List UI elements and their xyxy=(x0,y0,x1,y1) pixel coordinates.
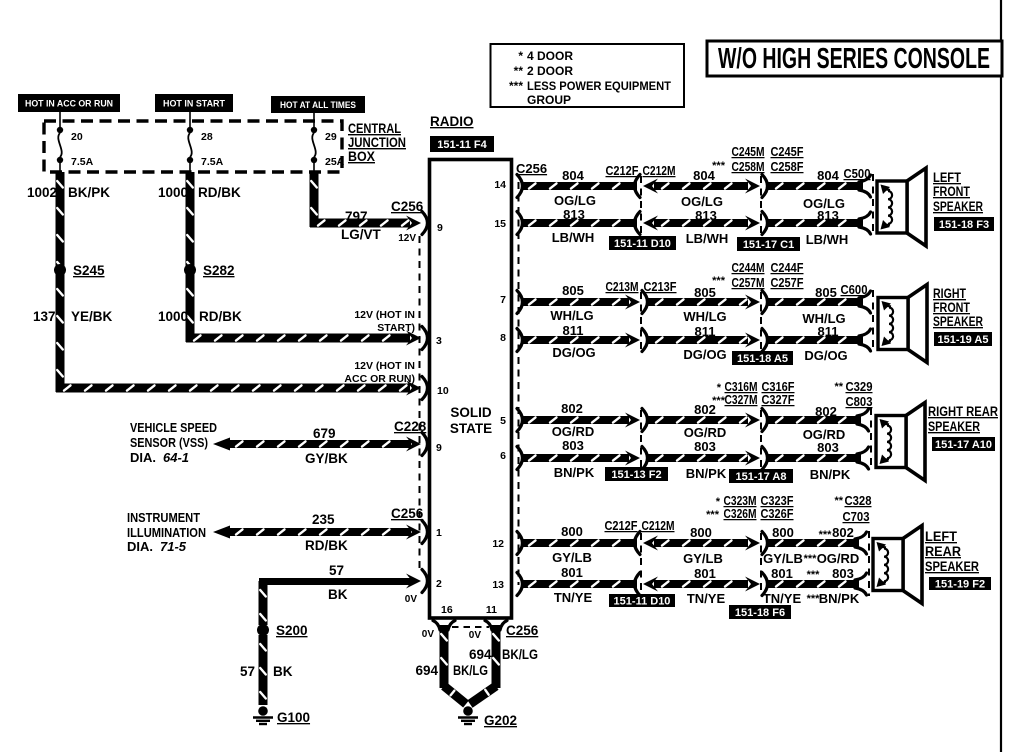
svg-text:679: 679 xyxy=(313,426,336,441)
svg-text:ACC OR RUN): ACC OR RUN) xyxy=(344,373,415,385)
svg-text:C258F: C258F xyxy=(771,160,804,174)
svg-text:64-1: 64-1 xyxy=(163,450,189,465)
svg-text:805: 805 xyxy=(815,285,837,300)
svg-text:9: 9 xyxy=(436,442,442,454)
svg-text:LESS POWER EQUIPMENT: LESS POWER EQUIPMENT xyxy=(527,79,672,93)
svg-text:C213M: C213M xyxy=(606,280,639,294)
svg-text:694: 694 xyxy=(415,663,438,678)
svg-text:BN/PK: BN/PK xyxy=(819,591,860,606)
svg-text:DG/OG: DG/OG xyxy=(804,348,847,363)
svg-text:813: 813 xyxy=(817,208,839,223)
svg-text:10: 10 xyxy=(437,385,449,397)
svg-text:GY/LB: GY/LB xyxy=(683,551,723,566)
svg-text:GY/LB: GY/LB xyxy=(763,551,803,566)
svg-text:G100: G100 xyxy=(277,710,310,725)
svg-text:GY/BK: GY/BK xyxy=(305,451,348,466)
svg-text:151-17 A8: 151-17 A8 xyxy=(736,471,787,483)
svg-text:57: 57 xyxy=(329,563,344,578)
svg-text:C228: C228 xyxy=(394,419,427,434)
svg-text:SENSOR (VSS): SENSOR (VSS) xyxy=(130,435,208,450)
svg-text:C500: C500 xyxy=(844,167,871,181)
svg-text:LEFT: LEFT xyxy=(925,529,958,544)
svg-text:RD/BK: RD/BK xyxy=(305,538,348,553)
svg-text:BK/LG: BK/LG xyxy=(453,663,488,678)
svg-text:802: 802 xyxy=(815,404,837,419)
svg-text:SPEAKER: SPEAKER xyxy=(925,559,979,574)
svg-text:802: 802 xyxy=(561,401,583,416)
svg-text:16: 16 xyxy=(441,604,453,616)
svg-text:C245M: C245M xyxy=(732,145,765,159)
svg-text:6: 6 xyxy=(500,450,506,462)
svg-text:***: *** xyxy=(509,79,523,93)
svg-text:**: ** xyxy=(834,495,843,507)
svg-text:15: 15 xyxy=(494,218,506,230)
svg-text:YE/BK: YE/BK xyxy=(71,309,113,324)
svg-text:SOLID: SOLID xyxy=(450,405,492,420)
svg-text:RADIO: RADIO xyxy=(430,114,474,129)
svg-text:***: *** xyxy=(804,553,818,565)
svg-text:151-17 A10: 151-17 A10 xyxy=(935,439,992,451)
svg-text:2: 2 xyxy=(436,578,442,590)
svg-text:**: ** xyxy=(514,64,524,78)
svg-text:RD/BK: RD/BK xyxy=(199,309,242,324)
svg-text:C323M: C323M xyxy=(724,494,757,508)
svg-text:C316F: C316F xyxy=(762,380,795,394)
svg-text:SPEAKER: SPEAKER xyxy=(928,419,980,434)
svg-text:**: ** xyxy=(834,381,843,393)
svg-text:14: 14 xyxy=(494,179,506,191)
svg-text:C257M: C257M xyxy=(732,276,765,290)
svg-text:C327M: C327M xyxy=(725,393,758,407)
svg-text:8: 8 xyxy=(500,332,506,344)
svg-text:START): START) xyxy=(377,322,415,334)
svg-text:800: 800 xyxy=(561,524,583,539)
svg-text:RIGHT: RIGHT xyxy=(933,286,967,301)
svg-text:W/O HIGH SERIES CONSOLE: W/O HIGH SERIES CONSOLE xyxy=(718,43,990,75)
svg-text:LB/WH: LB/WH xyxy=(686,231,729,246)
svg-text:OG/RD: OG/RD xyxy=(684,425,727,440)
svg-text:811: 811 xyxy=(818,324,839,339)
svg-text:800: 800 xyxy=(772,525,794,540)
svg-text:C803: C803 xyxy=(846,395,873,409)
svg-text:800: 800 xyxy=(690,525,712,540)
svg-text:C212M: C212M xyxy=(642,519,675,533)
svg-text:***: *** xyxy=(807,569,821,581)
svg-text:REAR: REAR xyxy=(925,544,961,559)
svg-text:C316M: C316M xyxy=(725,380,758,394)
svg-text:S245: S245 xyxy=(73,263,105,278)
svg-text:7: 7 xyxy=(500,294,506,306)
svg-text:GY/LB: GY/LB xyxy=(552,550,592,565)
svg-text:C600: C600 xyxy=(841,283,868,297)
svg-text:C256: C256 xyxy=(516,161,547,176)
svg-text:12V (HOT IN: 12V (HOT IN xyxy=(354,309,415,321)
svg-text:OG/RD: OG/RD xyxy=(817,551,860,566)
svg-text:803: 803 xyxy=(832,566,854,581)
svg-text:151-19 A5: 151-19 A5 xyxy=(938,334,989,346)
svg-text:C327F: C327F xyxy=(762,393,795,407)
svg-text:C329: C329 xyxy=(846,380,873,394)
svg-text:C326F: C326F xyxy=(761,507,794,521)
svg-text:25A: 25A xyxy=(325,156,345,168)
svg-text:TN/YE: TN/YE xyxy=(554,590,593,605)
svg-text:20: 20 xyxy=(71,131,83,143)
svg-text:C257F: C257F xyxy=(771,276,804,290)
svg-text:137: 137 xyxy=(33,309,56,324)
svg-text:BOX: BOX xyxy=(348,148,376,164)
svg-text:11: 11 xyxy=(486,604,497,616)
svg-text:LB/WH: LB/WH xyxy=(806,232,849,247)
svg-text:151-18 F6: 151-18 F6 xyxy=(735,607,785,619)
svg-text:*: * xyxy=(518,49,523,63)
svg-text:C256: C256 xyxy=(391,199,424,214)
svg-text:813: 813 xyxy=(563,207,585,222)
svg-text:802: 802 xyxy=(832,525,854,540)
svg-text:7.5A: 7.5A xyxy=(201,156,224,168)
svg-text:C328: C328 xyxy=(845,494,872,508)
svg-text:694: 694 xyxy=(469,647,492,662)
svg-text:FRONT: FRONT xyxy=(933,184,971,199)
svg-text:***: *** xyxy=(819,529,833,541)
svg-text:TN/YE: TN/YE xyxy=(687,591,726,606)
svg-text:803: 803 xyxy=(817,440,839,455)
svg-text:OG/LG: OG/LG xyxy=(681,194,723,209)
svg-text:BK: BK xyxy=(273,664,293,679)
svg-text:813: 813 xyxy=(695,208,717,223)
svg-text:LB/WH: LB/WH xyxy=(552,230,595,245)
svg-text:C213F: C213F xyxy=(644,280,677,294)
svg-text:4 DOOR: 4 DOOR xyxy=(527,49,573,63)
svg-text:DIA.: DIA. xyxy=(127,539,153,554)
svg-text:28: 28 xyxy=(201,131,213,143)
svg-text:151-11 D10: 151-11 D10 xyxy=(614,595,671,607)
svg-text:803: 803 xyxy=(562,438,584,453)
svg-text:LEFT: LEFT xyxy=(933,170,962,185)
svg-text:804: 804 xyxy=(562,168,584,183)
svg-text:C703: C703 xyxy=(843,510,870,524)
svg-text:151-13 F2: 151-13 F2 xyxy=(611,469,661,481)
svg-text:***: *** xyxy=(706,509,720,521)
svg-text:BK: BK xyxy=(328,587,348,602)
svg-text:805: 805 xyxy=(694,285,716,300)
svg-text:***: *** xyxy=(712,275,726,287)
svg-text:HOT IN ACC OR RUN: HOT IN ACC OR RUN xyxy=(25,98,113,109)
svg-text:HOT IN START: HOT IN START xyxy=(163,98,225,109)
svg-text:12V: 12V xyxy=(398,233,416,244)
svg-text:OG/RD: OG/RD xyxy=(552,424,595,439)
svg-text:151-17 C1: 151-17 C1 xyxy=(743,239,794,251)
svg-text:S200: S200 xyxy=(276,623,308,638)
svg-text:1000: 1000 xyxy=(158,309,188,324)
svg-text:C256: C256 xyxy=(391,506,424,521)
svg-text:LG/VT: LG/VT xyxy=(341,227,382,242)
svg-text:805: 805 xyxy=(562,283,584,298)
svg-text:151-11 D10: 151-11 D10 xyxy=(614,238,671,250)
svg-text:0V: 0V xyxy=(422,629,435,640)
svg-text:ILLUMINATION: ILLUMINATION xyxy=(127,525,206,540)
svg-text:0V: 0V xyxy=(469,630,482,641)
svg-text:C326M: C326M xyxy=(724,507,757,521)
svg-text:DG/OG: DG/OG xyxy=(683,347,726,362)
svg-text:***: *** xyxy=(712,160,726,172)
svg-text:12V (HOT IN: 12V (HOT IN xyxy=(354,360,415,372)
svg-text:13: 13 xyxy=(492,579,504,591)
svg-text:12: 12 xyxy=(492,538,504,550)
svg-text:STATE: STATE xyxy=(450,421,492,436)
svg-text:WH/LG: WH/LG xyxy=(683,309,726,324)
svg-text:7.5A: 7.5A xyxy=(71,156,94,168)
svg-text:797: 797 xyxy=(345,209,368,224)
svg-text:C245F: C245F xyxy=(771,145,804,159)
svg-text:C212M: C212M xyxy=(643,164,676,178)
svg-text:151-18 A5: 151-18 A5 xyxy=(737,353,788,365)
svg-text:151-18 F3: 151-18 F3 xyxy=(939,219,989,231)
svg-text:801: 801 xyxy=(561,565,583,580)
svg-text:2 DOOR: 2 DOOR xyxy=(527,64,573,78)
svg-text:TN/YE: TN/YE xyxy=(763,591,802,606)
svg-text:INSTRUMENT: INSTRUMENT xyxy=(127,510,200,525)
svg-text:DG/OG: DG/OG xyxy=(552,345,595,360)
svg-text:1000: 1000 xyxy=(158,185,188,200)
svg-text:FRONT: FRONT xyxy=(933,300,971,315)
svg-text:5: 5 xyxy=(500,415,506,427)
svg-text:3: 3 xyxy=(436,335,442,347)
svg-text:803: 803 xyxy=(694,439,716,454)
svg-text:BN/PK: BN/PK xyxy=(686,466,727,481)
svg-text:0V: 0V xyxy=(405,594,418,605)
svg-text:801: 801 xyxy=(694,566,716,581)
svg-text:RD/BK: RD/BK xyxy=(198,185,241,200)
svg-text:VEHICLE SPEED: VEHICLE SPEED xyxy=(130,420,217,435)
svg-text:WH/LG: WH/LG xyxy=(550,308,593,323)
svg-text:811: 811 xyxy=(563,323,584,338)
svg-text:1002: 1002 xyxy=(27,185,57,200)
svg-text:71-5: 71-5 xyxy=(160,539,187,554)
svg-text:C212F: C212F xyxy=(606,164,639,178)
svg-text:BK/LG: BK/LG xyxy=(502,647,538,662)
svg-text:151-19 F2: 151-19 F2 xyxy=(935,578,985,590)
svg-text:9: 9 xyxy=(437,222,443,234)
svg-text:G202: G202 xyxy=(484,713,517,728)
svg-text:*: * xyxy=(716,496,721,508)
svg-text:C244M: C244M xyxy=(732,261,765,275)
svg-text:*: * xyxy=(717,382,722,394)
svg-text:C244F: C244F xyxy=(771,261,804,275)
svg-text:811: 811 xyxy=(695,324,716,339)
svg-text:SPEAKER: SPEAKER xyxy=(933,199,983,214)
svg-text:BN/PK: BN/PK xyxy=(810,467,851,482)
svg-text:RIGHT REAR: RIGHT REAR xyxy=(928,404,998,419)
svg-text:57: 57 xyxy=(240,664,255,679)
svg-text:BK/PK: BK/PK xyxy=(68,185,110,200)
svg-text:DIA.: DIA. xyxy=(130,450,156,465)
svg-text:C212F: C212F xyxy=(605,519,638,533)
svg-text:151-11 F4: 151-11 F4 xyxy=(437,139,487,151)
svg-text:SPEAKER: SPEAKER xyxy=(933,314,983,329)
svg-text:801: 801 xyxy=(771,566,793,581)
svg-text:1: 1 xyxy=(436,527,442,539)
svg-text:C323F: C323F xyxy=(761,494,794,508)
svg-text:OG/LG: OG/LG xyxy=(554,193,596,208)
svg-text:S282: S282 xyxy=(203,263,235,278)
svg-text:C258M: C258M xyxy=(732,160,765,174)
svg-text:HOT AT ALL TIMES: HOT AT ALL TIMES xyxy=(280,100,356,111)
svg-text:29: 29 xyxy=(325,131,337,143)
svg-text:GROUP: GROUP xyxy=(527,93,571,107)
svg-text:C256: C256 xyxy=(506,623,539,638)
svg-text:235: 235 xyxy=(312,512,335,527)
svg-text:BN/PK: BN/PK xyxy=(554,465,595,480)
svg-text:804: 804 xyxy=(817,168,839,183)
